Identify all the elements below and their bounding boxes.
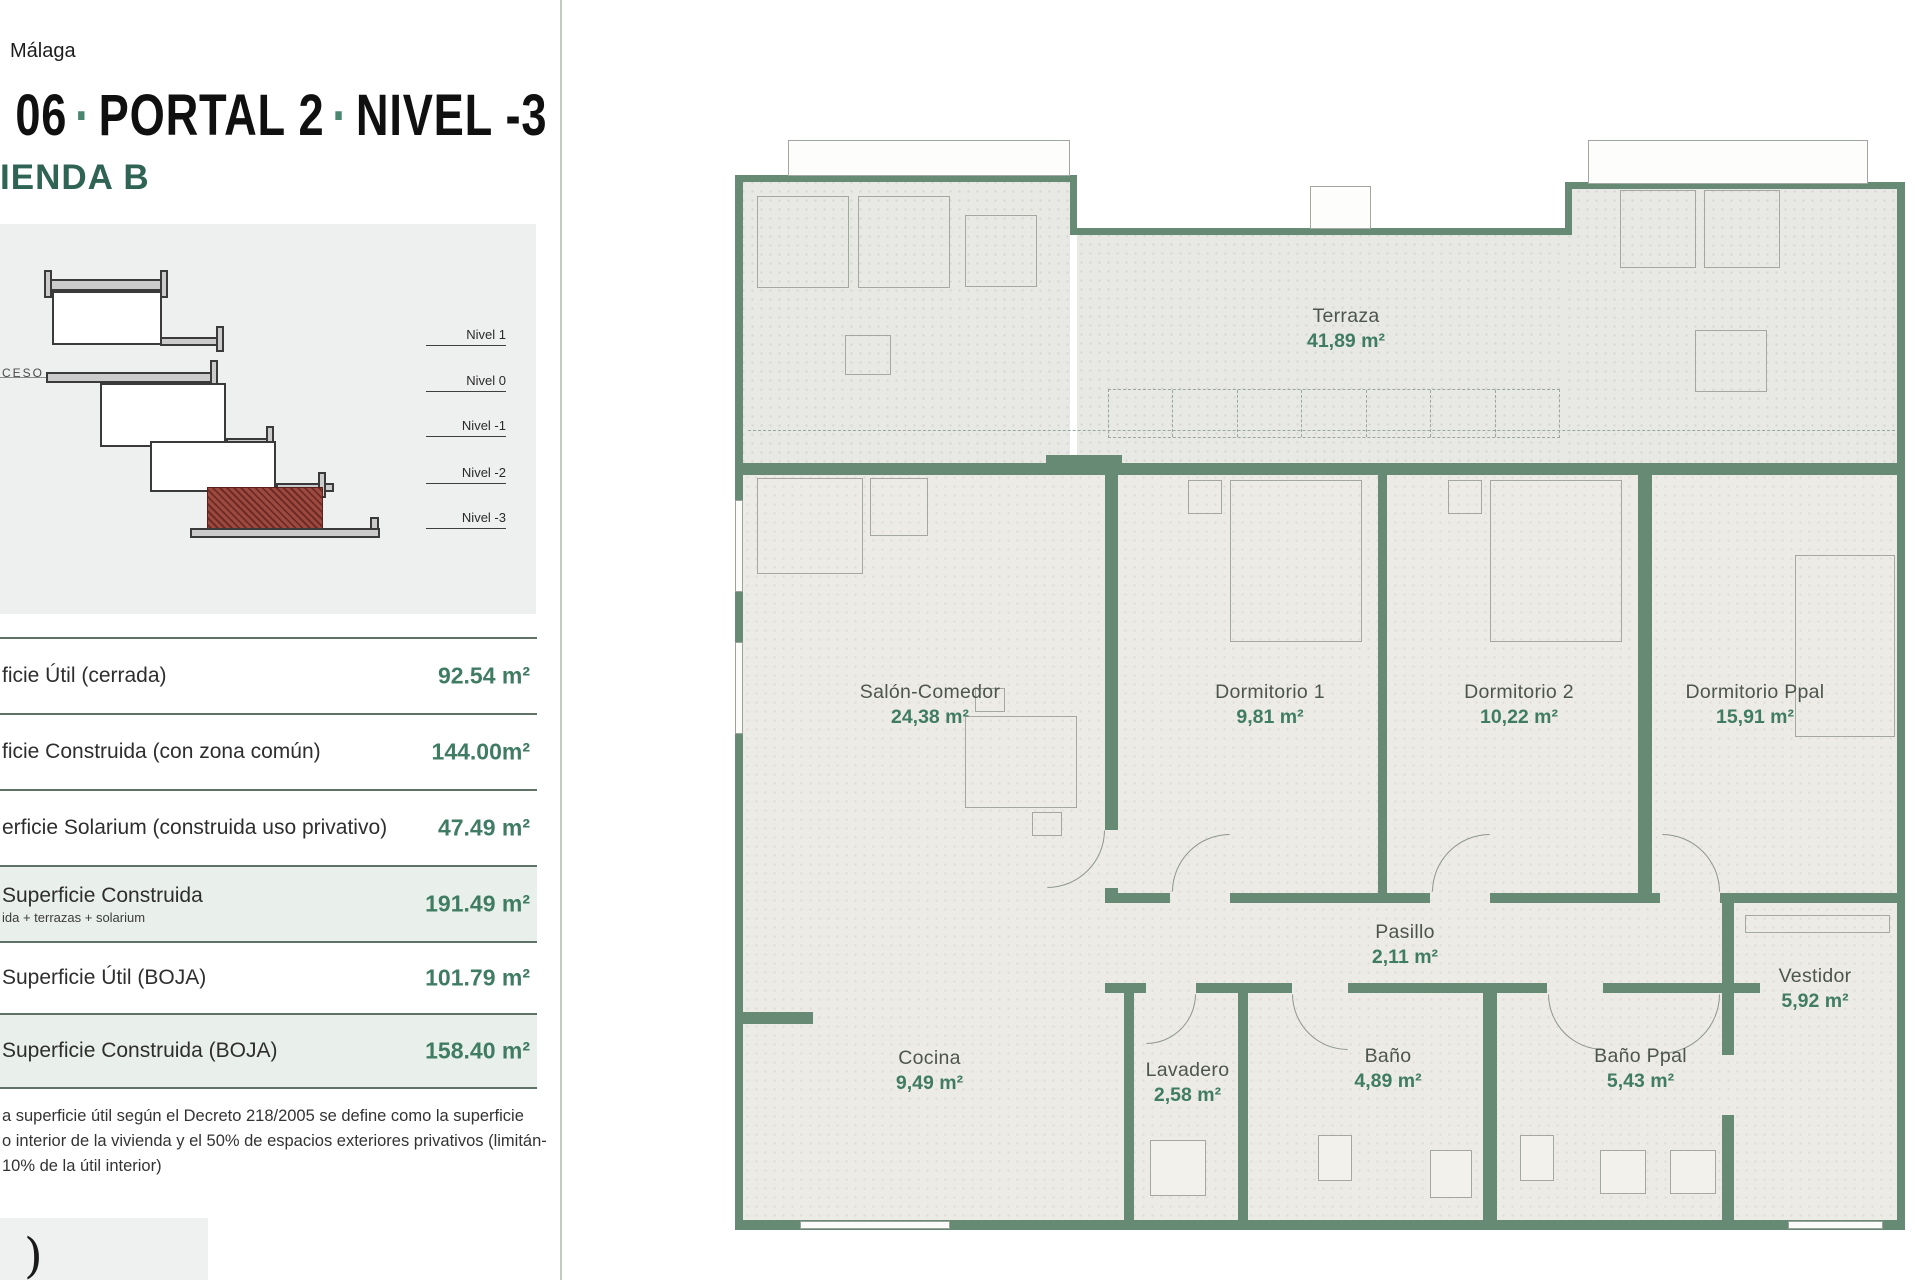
pergola-cell bbox=[1496, 390, 1559, 437]
section-room bbox=[52, 291, 162, 345]
level-label: Nivel -3 bbox=[360, 510, 506, 525]
page-title-clipped-glyph: Q bbox=[0, 83, 2, 148]
panel-divider bbox=[560, 0, 562, 1280]
pergola-cell bbox=[1302, 390, 1366, 437]
footnote-line: 10% de la útil interior) bbox=[2, 1154, 547, 1179]
room-area: 5,43 m² bbox=[1568, 1071, 1713, 1093]
room-area: 9,49 m² bbox=[862, 1073, 997, 1095]
room-label-lavadero: Lavadero 2,58 m² bbox=[1135, 1060, 1240, 1107]
room-area: 24,38 m² bbox=[835, 707, 1025, 729]
sink-outline bbox=[1670, 1150, 1716, 1194]
level-label: Nivel 0 bbox=[360, 373, 506, 388]
wall-segment bbox=[1378, 470, 1387, 903]
unit-title: IENDA B bbox=[0, 158, 150, 198]
pergola-cell bbox=[1367, 390, 1431, 437]
window bbox=[735, 500, 743, 592]
footnote-line: a superficie útil según el Decreto 218/2… bbox=[2, 1104, 547, 1129]
furniture-outline bbox=[757, 196, 849, 288]
room-name: Dormitorio 1 bbox=[1180, 682, 1360, 704]
wall-segment bbox=[1897, 182, 1905, 1230]
room-area: 9,81 m² bbox=[1180, 707, 1360, 729]
room-name: Cocina bbox=[862, 1048, 997, 1070]
page-title: Q 06·PORTAL 2·NIVEL -3 bbox=[0, 82, 547, 149]
section-tab bbox=[216, 326, 224, 352]
wall-segment bbox=[1638, 470, 1652, 903]
level-line bbox=[426, 436, 506, 437]
pergola-cell bbox=[1431, 390, 1495, 437]
table-row: ficie Construida (con zona común) 144.00… bbox=[0, 713, 537, 789]
row-value: 47.49 m² bbox=[438, 815, 530, 842]
logo-mark: ) bbox=[24, 1228, 43, 1284]
room-area: 5,92 m² bbox=[1735, 991, 1895, 1013]
wall-segment bbox=[1105, 893, 1170, 903]
section-beam bbox=[160, 337, 224, 346]
washer-outline bbox=[1150, 1140, 1206, 1196]
wall-segment bbox=[1722, 1115, 1734, 1230]
level-line bbox=[426, 345, 506, 346]
room-area: 41,89 m² bbox=[1246, 331, 1446, 353]
nightstand-outline bbox=[1448, 480, 1482, 514]
room-name: Lavadero bbox=[1135, 1060, 1240, 1082]
room-area: 2,11 m² bbox=[1330, 947, 1480, 969]
room-area: 2,58 m² bbox=[1135, 1085, 1240, 1107]
access-label: CESO bbox=[2, 366, 44, 380]
terrace-parapet bbox=[1588, 140, 1868, 184]
room-area: 10,22 m² bbox=[1429, 707, 1609, 729]
room-name: Terraza bbox=[1246, 306, 1446, 328]
section-room bbox=[100, 383, 226, 447]
furniture-outline bbox=[965, 215, 1037, 287]
toilet-outline bbox=[1520, 1135, 1554, 1181]
room-name: Pasillo bbox=[1330, 922, 1480, 944]
room-area: 15,91 m² bbox=[1660, 707, 1850, 729]
section-room bbox=[150, 441, 276, 492]
furniture-outline bbox=[870, 478, 928, 536]
table-row: Superficie Construida (BOJA) 158.40 m² bbox=[0, 1013, 537, 1087]
level-line bbox=[426, 528, 506, 529]
table-row: Superficie Útil (BOJA) 101.79 m² bbox=[0, 941, 537, 1013]
row-value: 191.49 m² bbox=[425, 891, 530, 918]
room-area: 4,89 m² bbox=[1328, 1071, 1448, 1093]
pergola-cell bbox=[1173, 390, 1237, 437]
room-label-dormitorio-ppal: Dormitorio Ppal 15,91 m² bbox=[1660, 682, 1850, 729]
table-row: erficie Solarium (construida uso privati… bbox=[0, 789, 537, 865]
table-row: ficie Útil (cerrada) 92.54 m² bbox=[0, 637, 537, 713]
table-row: Superficie Construida ida + terrazas + s… bbox=[0, 865, 537, 941]
sofa-outline bbox=[757, 478, 863, 574]
wall-segment bbox=[735, 463, 1897, 475]
room-label-bano: Baño 4,89 m² bbox=[1328, 1046, 1448, 1093]
sink-outline bbox=[1600, 1150, 1646, 1194]
room-label-vestidor: Vestidor 5,92 m² bbox=[1735, 966, 1895, 1013]
furniture-outline bbox=[845, 335, 891, 375]
room-label-salon-comedor: Salón-Comedor 24,38 m² bbox=[835, 682, 1025, 729]
level-label: Nivel -2 bbox=[360, 465, 506, 480]
room-label-cocina: Cocina 9,49 m² bbox=[862, 1048, 997, 1095]
room-name: Baño Ppal bbox=[1568, 1046, 1713, 1068]
wall-segment bbox=[1070, 175, 1077, 235]
room-label-dormitorio-2: Dormitorio 2 10,22 m² bbox=[1429, 682, 1609, 729]
wall-segment bbox=[1105, 470, 1118, 830]
title-dot: · bbox=[324, 83, 355, 148]
bed-outline bbox=[1230, 480, 1362, 642]
level-label: Nivel -1 bbox=[360, 418, 506, 433]
window bbox=[1788, 1221, 1883, 1229]
room-label-dormitorio-1: Dormitorio 1 9,81 m² bbox=[1180, 682, 1360, 729]
room-name: Salón-Comedor bbox=[835, 682, 1025, 704]
room-label-terraza: Terraza 41,89 m² bbox=[1246, 306, 1446, 353]
title-dot: · bbox=[67, 83, 98, 148]
highlighted-level-hatch bbox=[207, 487, 323, 532]
room-name: Vestidor bbox=[1735, 966, 1895, 988]
wall-segment bbox=[1070, 228, 1572, 235]
room-name: Baño bbox=[1328, 1046, 1448, 1068]
window bbox=[800, 1221, 950, 1229]
room-name: Dormitorio 2 bbox=[1429, 682, 1609, 704]
page-title-part: 06 bbox=[15, 83, 67, 148]
section-beam bbox=[46, 279, 168, 291]
wall-segment bbox=[1490, 893, 1660, 903]
page-title-part: PORTAL 2 bbox=[99, 83, 325, 148]
row-value: 92.54 m² bbox=[438, 663, 530, 690]
toilet-outline bbox=[1318, 1135, 1352, 1181]
dining-table-outline bbox=[965, 716, 1077, 808]
furniture-outline bbox=[858, 196, 950, 288]
nightstand-outline bbox=[1188, 480, 1222, 514]
level-line bbox=[426, 391, 506, 392]
room-label-pasillo: Pasillo 2,11 m² bbox=[1330, 922, 1480, 969]
terrace-parapet bbox=[1310, 186, 1371, 229]
wardrobe-outline bbox=[1745, 915, 1890, 933]
wall-segment bbox=[1483, 983, 1497, 1230]
footnote: a superficie útil según el Decreto 218/2… bbox=[2, 1104, 547, 1179]
section-tab bbox=[44, 270, 52, 298]
wall-segment bbox=[1124, 983, 1134, 1230]
pergola-cell bbox=[1109, 390, 1173, 437]
row-value: 144.00m² bbox=[432, 739, 530, 766]
level-line bbox=[426, 483, 506, 484]
wall-segment bbox=[735, 175, 1077, 182]
section-tray bbox=[190, 528, 380, 538]
room-name: Dormitorio Ppal bbox=[1660, 682, 1850, 704]
page-title-part: NIVEL -3 bbox=[356, 83, 547, 148]
table-bottom-line bbox=[0, 1087, 537, 1089]
pergola-dashed-grid bbox=[1108, 389, 1560, 438]
wall-segment bbox=[1722, 903, 1734, 1055]
furniture-outline bbox=[1620, 190, 1696, 268]
row-value: 158.40 m² bbox=[425, 1038, 530, 1065]
section-beam bbox=[46, 372, 218, 383]
sink-outline bbox=[1430, 1150, 1472, 1198]
city-label: Málaga bbox=[10, 40, 76, 63]
level-label: Nivel 1 bbox=[360, 327, 506, 342]
furniture-outline bbox=[1704, 190, 1780, 268]
bed-outline bbox=[1490, 480, 1622, 642]
wall-segment bbox=[1348, 983, 1547, 993]
terrace-parapet bbox=[788, 140, 1070, 176]
wall-segment bbox=[1565, 182, 1572, 235]
wall-segment bbox=[1720, 893, 1897, 903]
pergola-cell bbox=[1238, 390, 1302, 437]
room-label-bano-ppal: Baño Ppal 5,43 m² bbox=[1568, 1046, 1713, 1093]
wall-segment bbox=[1230, 893, 1430, 903]
window bbox=[735, 642, 743, 734]
furniture-outline bbox=[1695, 330, 1767, 392]
wall-stub bbox=[735, 1012, 813, 1024]
footnote-line: o interior de la vivienda y el 50% de es… bbox=[2, 1129, 547, 1154]
row-value: 101.79 m² bbox=[425, 965, 530, 992]
